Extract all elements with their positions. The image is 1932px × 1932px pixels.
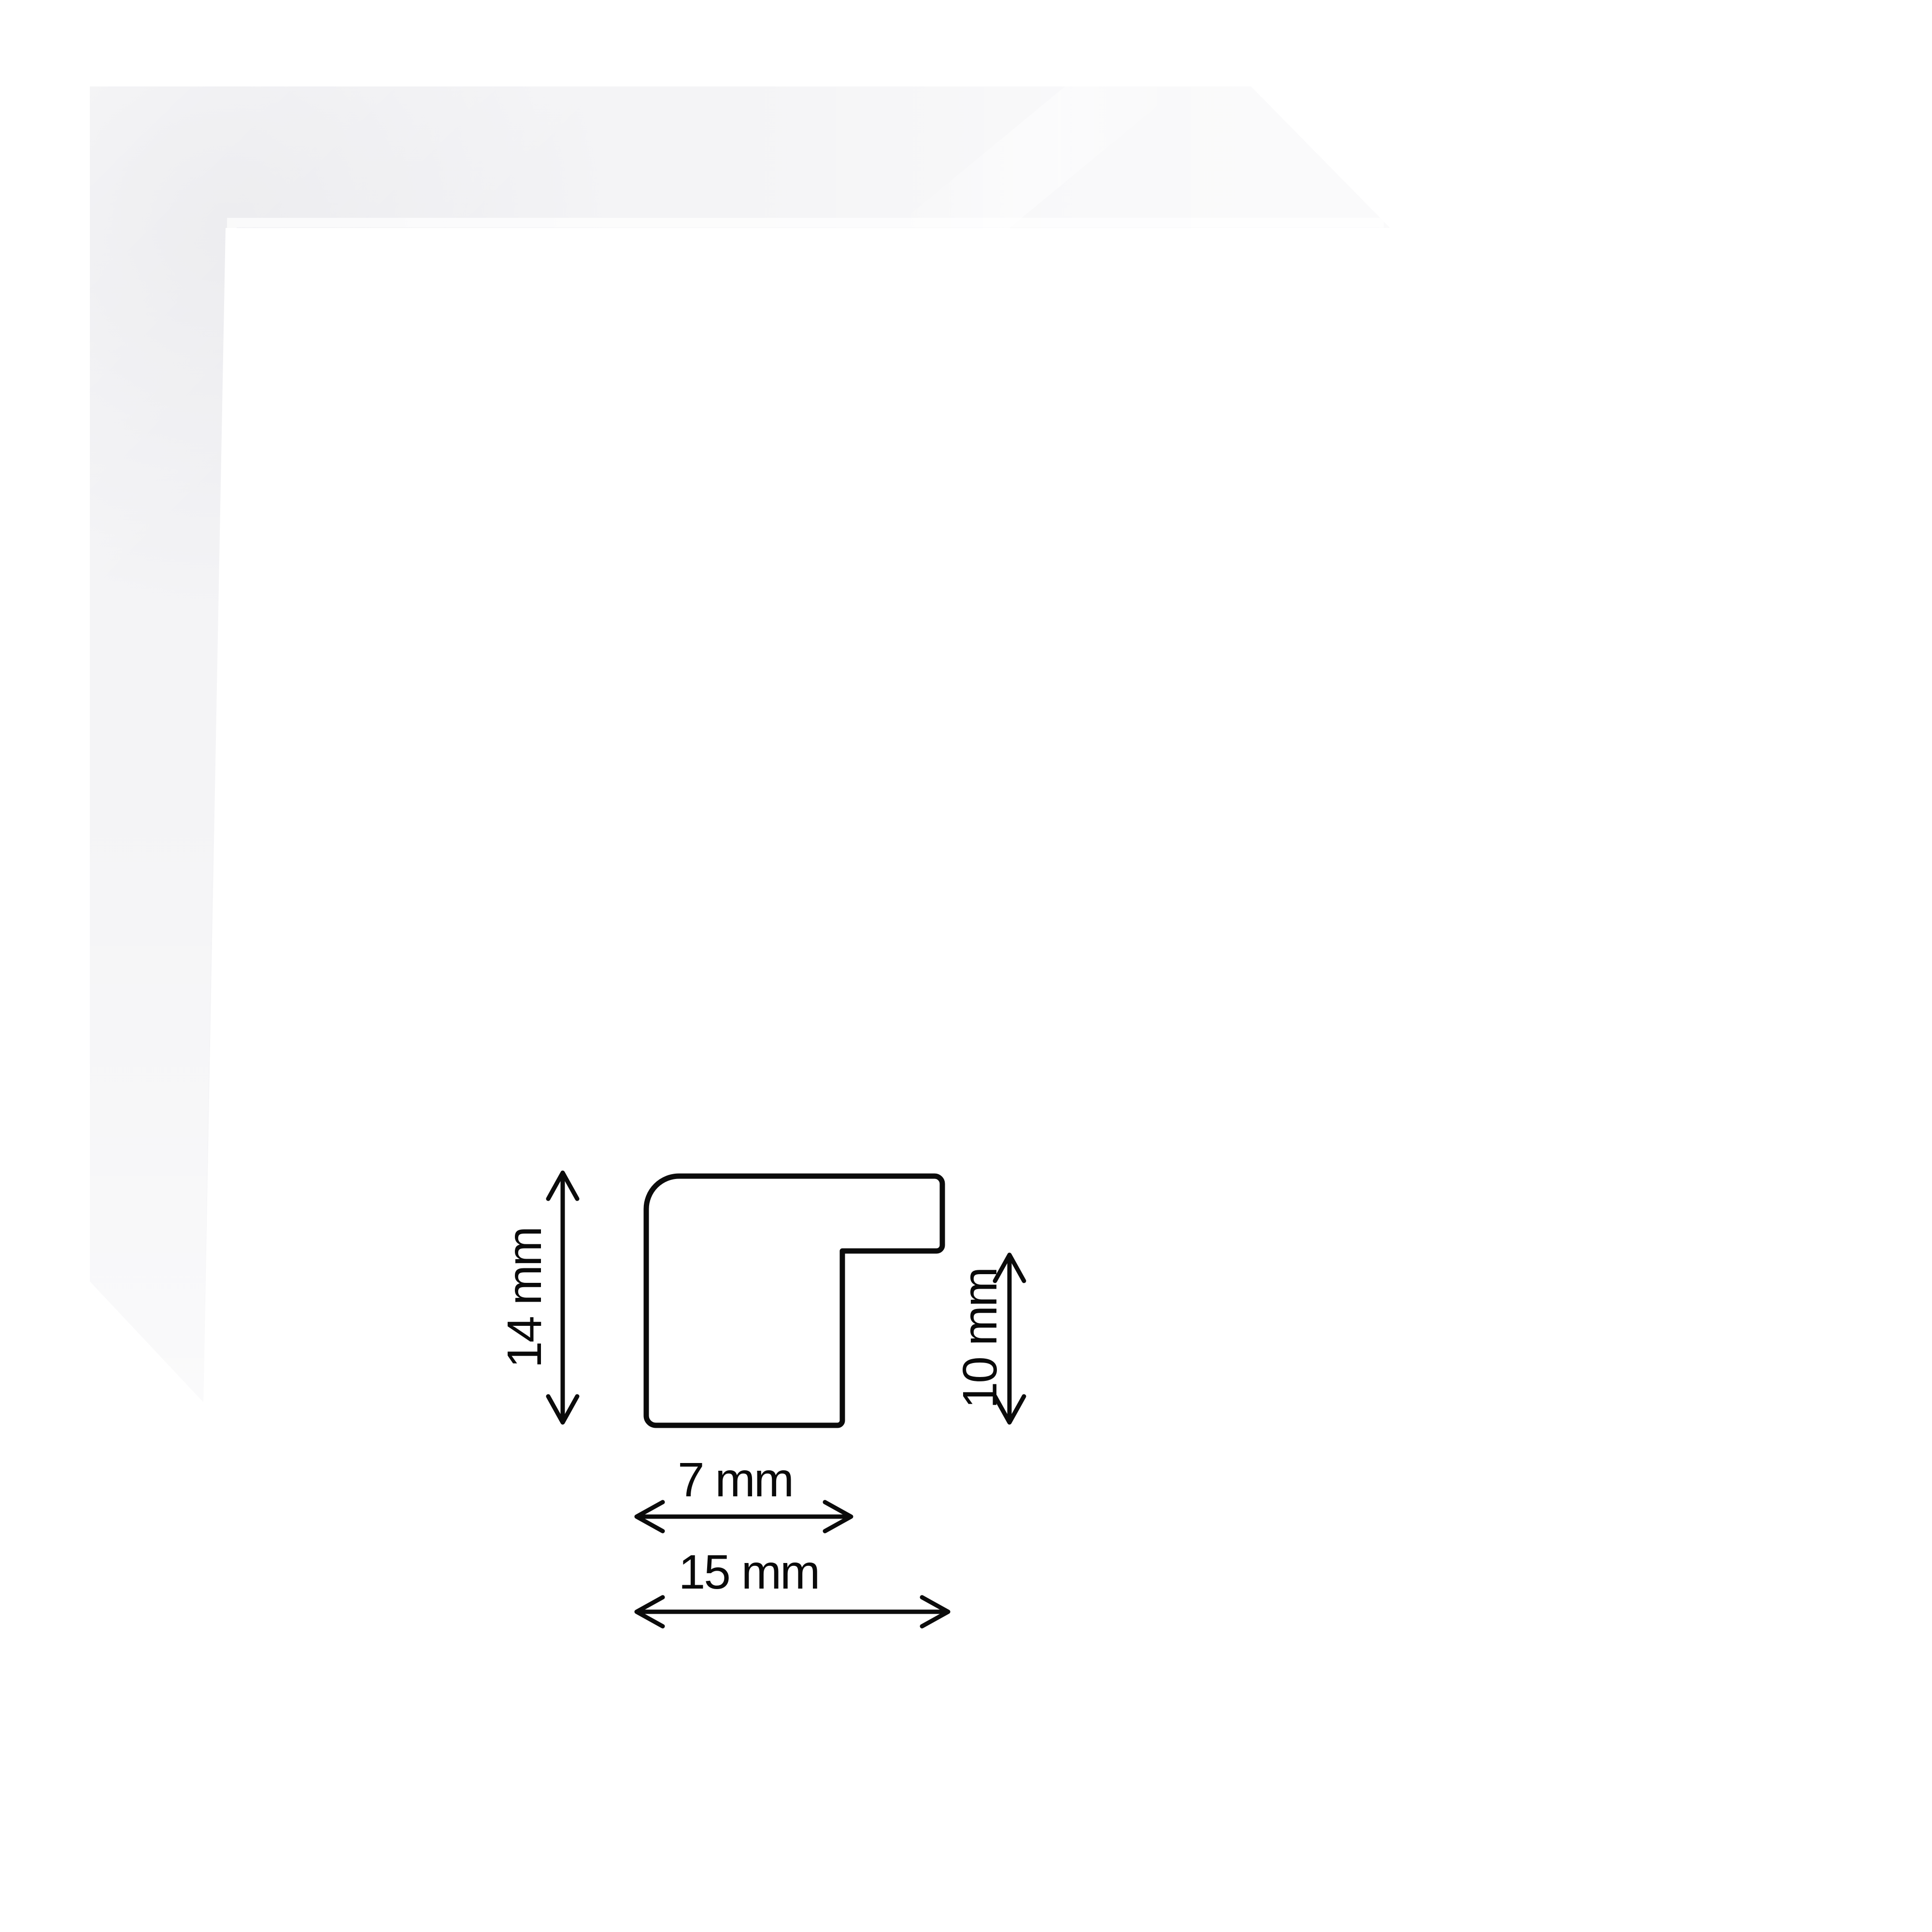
frame-top-rail-light [226, 86, 1390, 228]
rabbet-dimension-label: 10 mm [953, 1268, 1007, 1409]
page: 14 mm 10 mm 7 mm 15 mm [0, 0, 1932, 1932]
profile-outline [646, 1176, 942, 1425]
profile-diagram: 14 mm 10 mm 7 mm 15 mm [497, 1173, 1024, 1626]
height-dimension-arrow [548, 1173, 577, 1422]
face-width-dimension-label: 7 mm [678, 1453, 793, 1507]
total-width-dimension-label: 15 mm [679, 1545, 819, 1599]
frame-left-rail-light [90, 228, 223, 1402]
total-width-dimension-arrow [637, 1597, 948, 1626]
canvas: 14 mm 10 mm 7 mm 15 mm [0, 0, 1932, 1932]
height-dimension-label: 14 mm [497, 1228, 552, 1368]
